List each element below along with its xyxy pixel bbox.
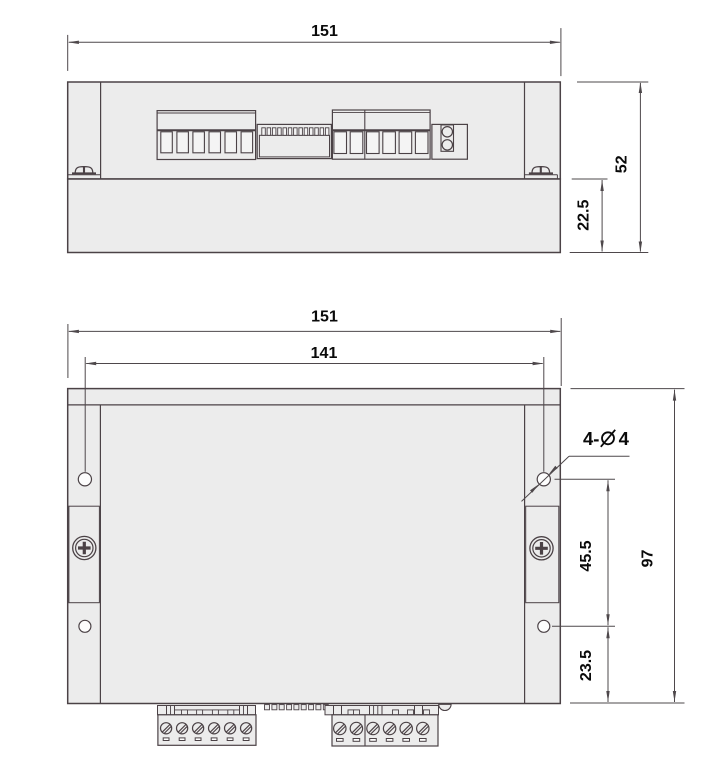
svg-text:151: 151 (311, 23, 338, 40)
svg-text:4-: 4- (583, 428, 599, 449)
svg-text:22.5: 22.5 (576, 200, 593, 231)
svg-text:151: 151 (311, 309, 338, 326)
svg-text:4: 4 (619, 428, 630, 449)
svg-text:97: 97 (640, 550, 657, 568)
svg-text:52: 52 (613, 155, 630, 173)
svg-text:23.5: 23.5 (578, 650, 595, 681)
svg-text:141: 141 (311, 345, 338, 362)
svg-text:45.5: 45.5 (578, 540, 595, 571)
